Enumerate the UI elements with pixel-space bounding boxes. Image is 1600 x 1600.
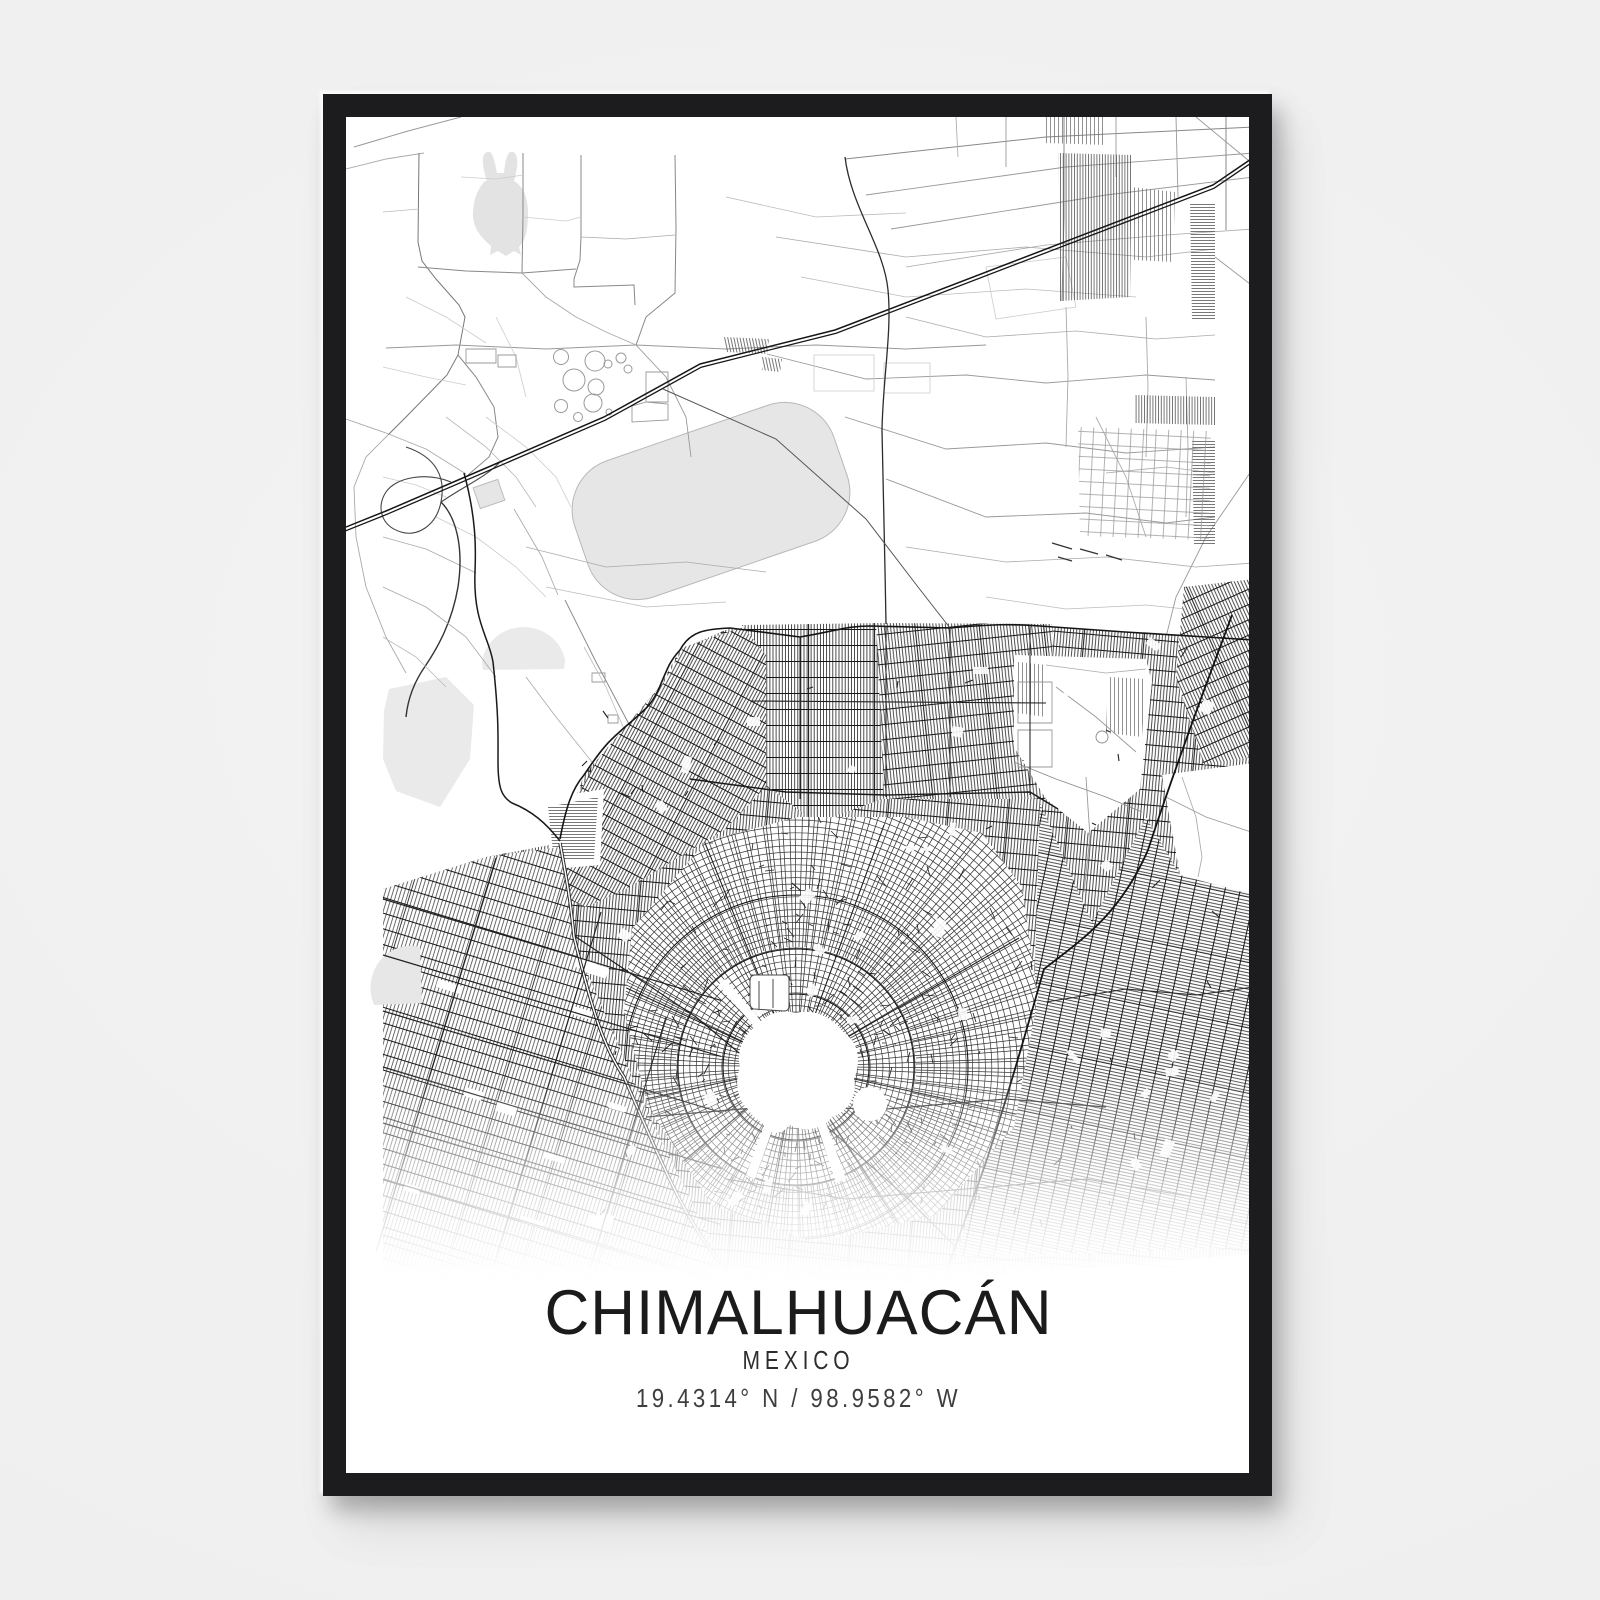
svg-text:19.4314° N / 98.9582° W: 19.4314° N / 98.9582° W xyxy=(636,1383,961,1413)
svg-text:MEXICO: MEXICO xyxy=(743,1345,855,1375)
svg-text:CHIMALHUACÁN: CHIMALHUACÁN xyxy=(545,1278,1053,1348)
